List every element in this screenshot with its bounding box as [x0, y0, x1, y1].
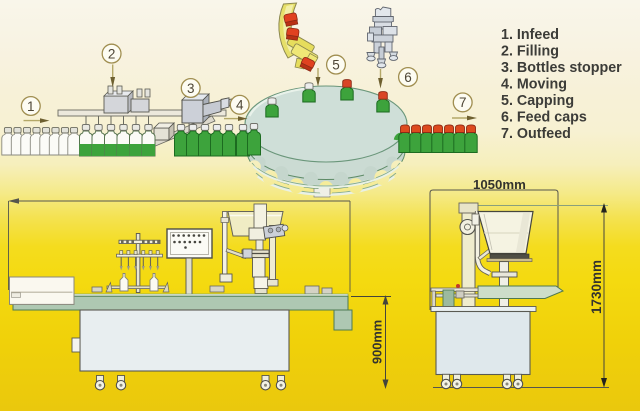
svg-text:5. Capping: 5. Capping [501, 93, 574, 109]
svg-text:7: 7 [459, 95, 467, 110]
svg-text:1. Infeed: 1. Infeed [501, 27, 559, 43]
svg-text:1050mm: 1050mm [473, 177, 526, 192]
svg-text:3: 3 [187, 81, 195, 96]
svg-text:900mm: 900mm [370, 320, 385, 364]
svg-text:4: 4 [236, 98, 244, 113]
svg-text:6: 6 [404, 70, 412, 85]
svg-text:6. Feed caps: 6. Feed caps [501, 110, 587, 126]
svg-text:7. Outfeed: 7. Outfeed [501, 126, 571, 142]
svg-text:3. Bottles stopper: 3. Bottles stopper [501, 60, 622, 76]
svg-text:1: 1 [27, 99, 35, 114]
svg-text:2: 2 [108, 46, 116, 61]
svg-text:2. Filling: 2. Filling [501, 44, 559, 60]
svg-text:5: 5 [332, 57, 340, 72]
svg-text:1730mm: 1730mm [589, 260, 604, 314]
svg-text:4. Moving: 4. Moving [501, 77, 567, 93]
